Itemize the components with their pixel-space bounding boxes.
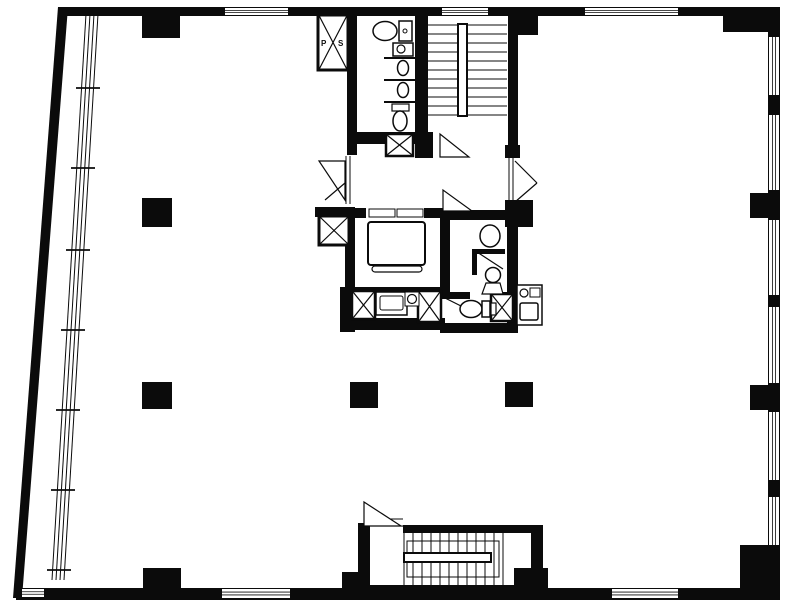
window-top-3 (585, 8, 678, 15)
wc-front-bowl (486, 268, 501, 283)
door-east-leaf (515, 161, 537, 183)
urinal-a (398, 61, 409, 76)
toilet-tank-3 (482, 301, 490, 317)
core-wall-stair-right (508, 16, 518, 156)
door-leaf-washroom (477, 252, 503, 269)
elevator-car (368, 222, 425, 265)
window-top-2 (442, 8, 488, 15)
core-wall-stub-a (420, 144, 433, 158)
toilet-tank-3b (491, 303, 496, 315)
window-bottom-corner (22, 589, 44, 597)
column-bottom-a (143, 568, 181, 590)
shaft-label-p: P (321, 39, 327, 48)
toilet-bowl-1 (373, 22, 397, 41)
column-right-b (750, 385, 780, 410)
elevator-sill (372, 266, 422, 272)
washroom-partition-v (472, 249, 477, 275)
window-bottom-2 (612, 589, 678, 598)
column-bottom-stair-right (514, 568, 548, 590)
column-free-right (505, 382, 533, 407)
wc-front-base (482, 283, 503, 294)
corner-column-bottom-right (740, 545, 780, 600)
stair-enclosure-wall-top (403, 525, 543, 533)
window-band-glazing (56, 14, 90, 580)
column-top-b (508, 16, 538, 35)
stair-rail-lower (404, 553, 491, 562)
window-right-5 (769, 412, 779, 480)
washbasin (480, 225, 500, 247)
window-right-2 (769, 115, 779, 190)
kitchen-sink (520, 303, 538, 320)
floor-plan-drawing: PS (0, 0, 787, 604)
window-right-3 (769, 220, 779, 295)
window-top-1 (225, 8, 288, 15)
core-wall-stub-b (505, 145, 520, 158)
corner-column-top-right (723, 7, 780, 32)
column-top-a (142, 16, 180, 38)
door-lobby-leaf (443, 190, 472, 211)
window-right-1 (769, 37, 779, 95)
column-free-left-a (142, 198, 172, 227)
floor-plan-page: PS (0, 0, 787, 604)
column-free-center (350, 382, 378, 408)
column-bottom-stair-left (342, 572, 368, 590)
elevator-wall-right (440, 208, 450, 297)
shaft-label-s: S (338, 39, 344, 48)
vanity-sink (408, 295, 417, 304)
column-right-a (750, 193, 780, 218)
toilet-tank-2 (392, 104, 409, 111)
lavatory-basin (397, 45, 405, 53)
door-east-leaf (515, 183, 537, 202)
stair-rail-upper (458, 24, 467, 116)
toilet-flush-1 (403, 29, 407, 33)
door-stair-landing (440, 134, 469, 157)
core-wall-bottom-right (440, 323, 518, 333)
urinal-b (398, 83, 409, 98)
window-bottom-1 (222, 589, 290, 598)
kitchen-faucet (520, 289, 528, 297)
column-free-left-b (142, 382, 172, 409)
toilet-bowl-2 (393, 111, 407, 131)
vanity-counter (376, 292, 407, 315)
window-band-glazing (60, 14, 94, 580)
toilet-bowl-3 (460, 301, 482, 318)
window-right-6 (769, 497, 779, 545)
window-right-4 (769, 307, 779, 383)
door-stair-lower (364, 502, 401, 526)
